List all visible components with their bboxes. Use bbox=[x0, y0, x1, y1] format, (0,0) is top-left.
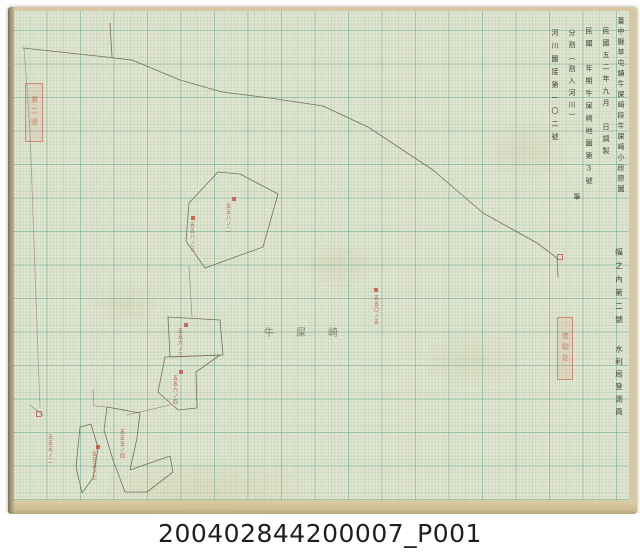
red-seal bbox=[232, 197, 236, 201]
connector-line bbox=[127, 405, 170, 415]
map-content: 五五八ノ三 五五八ノ二 五五〇ノ五 五五六ノ三 五五六ノ四 五五五ノ三 五五五ノ… bbox=[8, 7, 637, 514]
north-tick-line bbox=[110, 23, 112, 57]
boundary-end-tick bbox=[557, 258, 558, 277]
lot-annotation: 五五六ノ三 bbox=[177, 328, 182, 358]
paper-left-shadow bbox=[8, 7, 15, 514]
map-linework bbox=[8, 7, 637, 514]
red-mark bbox=[557, 254, 563, 260]
red-seal bbox=[179, 370, 183, 374]
lot-annotation: 五五〇ノ五 bbox=[373, 295, 378, 325]
parcel-lower bbox=[158, 355, 220, 410]
margin-river-note: 河川圖接第一〇二號 bbox=[551, 29, 558, 146]
scanned-map-sheet: 五五八ノ三 五五八ノ二 五五〇ノ五 五五六ノ三 五五六ノ四 五五五ノ三 五五五ノ… bbox=[8, 7, 637, 514]
margin-pen-note: 筆 bbox=[573, 193, 580, 200]
red-seal bbox=[184, 323, 188, 327]
red-mark bbox=[36, 411, 42, 417]
margin-split-note: 分割（割入河川） bbox=[568, 29, 575, 125]
parcel-pentagon bbox=[186, 172, 278, 268]
lot-annotation: 五五五ノ二 bbox=[47, 434, 52, 464]
connector-line bbox=[93, 390, 107, 407]
margin-date-column: 民國五二年九月 日調製 bbox=[602, 27, 609, 159]
lot-annotation: 五五六ノ四 bbox=[172, 375, 177, 405]
margin-set-number-note: 幅之內第二號 bbox=[615, 248, 623, 329]
margin-surveyor-note: 水利局登測員 bbox=[615, 345, 623, 420]
red-stamp-left: 第二號 bbox=[25, 83, 43, 142]
lot-annotation: 五五八ノ二 bbox=[225, 203, 230, 233]
red-seal bbox=[96, 445, 100, 449]
margin-title-column: 臺中縣草屯鎮牛屎崎段牛屎崎小段原圖 bbox=[617, 17, 624, 196]
margin-sheet-column: 民國 年期牛屎崎地圖第３號 bbox=[585, 27, 592, 190]
boundary-line bbox=[23, 48, 557, 258]
lot-annotation: 五五五ノ四 bbox=[119, 429, 124, 459]
red-seal bbox=[374, 288, 378, 292]
red-stamp-right: 查驗訖 bbox=[557, 317, 573, 380]
red-seal bbox=[191, 216, 195, 220]
lot-annotation: 五五八ノ三 bbox=[189, 222, 194, 252]
page: 五五八ノ三 五五八ノ二 五五〇ノ五 五五六ノ三 五五六ノ四 五五五ノ三 五五五ノ… bbox=[0, 0, 640, 553]
river-fork bbox=[104, 407, 173, 492]
lot-annotation: 五五五ノ三 bbox=[91, 451, 96, 481]
place-name-label: 牛屎崎 bbox=[264, 324, 360, 339]
archive-id-caption: 200402844200007_P001 bbox=[0, 513, 640, 553]
connector-line bbox=[189, 266, 192, 317]
